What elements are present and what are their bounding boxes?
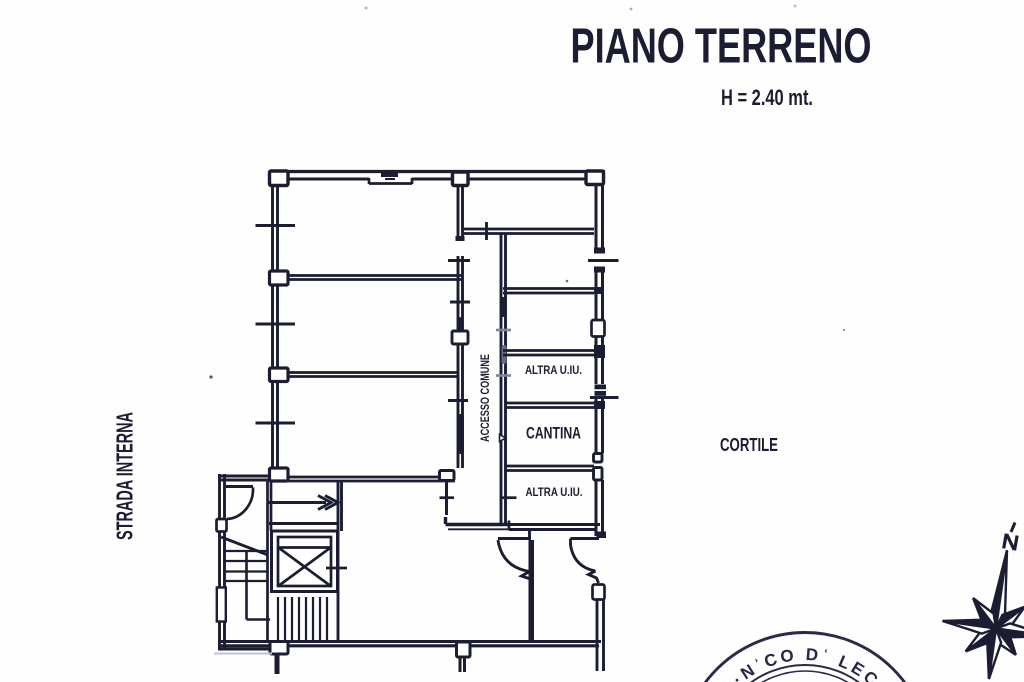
svg-text:⌡·NʾCO Dʿ LECʻ: ⌡·NʾCO Dʿ LECʻ: [719, 645, 891, 682]
svg-text:STRADA INTERNA: STRADA INTERNA: [112, 412, 138, 540]
svg-text:ACCESSO COMUNE: ACCESSO COMUNE: [480, 354, 492, 442]
svg-text:ALTRA U.IU.: ALTRA U.IU.: [525, 363, 582, 377]
svg-text:H = 2.40 mt.: H = 2.40 mt.: [721, 85, 813, 110]
svg-text:ALTRA U.IU.: ALTRA U.IU.: [526, 485, 583, 499]
svg-text:PIANO TERRENO: PIANO TERRENO: [571, 20, 872, 74]
svg-text:CORTILE: CORTILE: [720, 435, 778, 455]
svg-text:CANTINA: CANTINA: [526, 424, 581, 443]
